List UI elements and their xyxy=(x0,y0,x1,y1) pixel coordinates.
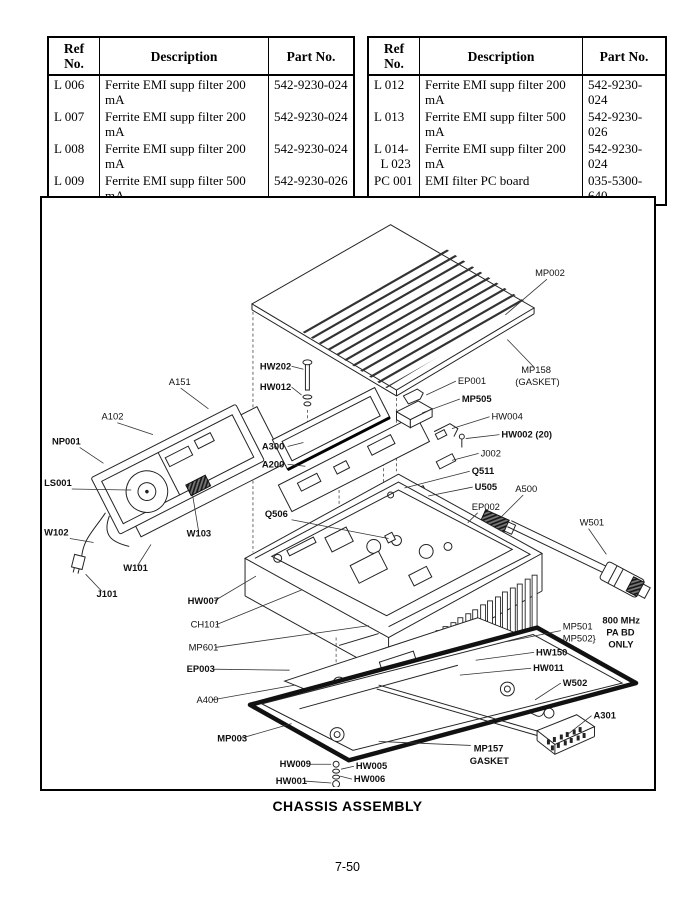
label-q511: Q511 xyxy=(472,465,494,476)
label-mp158-gasket: (GASKET) xyxy=(515,376,559,387)
label-800mhz-note: 800 MHz xyxy=(602,615,640,626)
label-hw001: HW001 xyxy=(276,775,307,786)
page-number: 7-50 xyxy=(0,860,695,874)
description: Ferrite EMI supp filter 200 mA xyxy=(100,108,269,140)
manual-page: Ref No. Description Part No. L 006 Ferri… xyxy=(0,0,695,899)
label-np001: NP001 xyxy=(52,435,81,446)
part-no: 542-9230-026 xyxy=(583,108,667,140)
label-w101: W101 xyxy=(123,562,148,573)
table-header-row: Ref No. Description Part No. xyxy=(368,37,666,75)
label-hw004: HW004 xyxy=(492,411,523,422)
part-top-cover-mp002 xyxy=(252,205,652,429)
ref-no: L 014- L 023 xyxy=(368,140,420,172)
parts-table-right: Ref No. Description Part No. L 012 Ferri… xyxy=(367,36,667,206)
part-no: 542-9230-024 xyxy=(583,75,667,108)
brace-glyph: } xyxy=(592,632,595,643)
label-hw007: HW007 xyxy=(188,595,219,606)
label-hw011: HW011 xyxy=(533,662,564,673)
col-ref: Ref No. xyxy=(368,37,420,75)
label-mp505: MP505 xyxy=(462,393,492,404)
label-mp157-gasket: GASKET xyxy=(470,755,509,766)
label-mp157: MP157 xyxy=(474,742,504,753)
diagram-title: CHASSIS ASSEMBLY xyxy=(0,798,695,814)
label-mp002: MP002 xyxy=(535,267,565,278)
label-ch101: CH101 xyxy=(191,619,220,630)
label-mp502: MP502 xyxy=(563,632,593,643)
ref-no: L 006 xyxy=(48,75,100,108)
table-row: L 014- L 023 Ferrite EMI supp filter 200… xyxy=(368,140,666,172)
part-j002 xyxy=(436,454,455,469)
label-q506: Q506 xyxy=(265,508,288,519)
part-no: 542-9230-024 xyxy=(269,75,355,108)
part-no: 542-9230-024 xyxy=(583,140,667,172)
chassis-assembly-diagram: MP002 MP158 (GASKET) HW202 HW012 EP001 M… xyxy=(42,198,652,787)
label-w501: W501 xyxy=(580,517,605,528)
label-a200: A200 xyxy=(262,458,284,469)
part-bottom-screws xyxy=(333,761,340,787)
label-hw009: HW009 xyxy=(280,758,311,769)
table-row: L 006 Ferrite EMI supp filter 200 mA 542… xyxy=(48,75,354,108)
ref-no: L 008 xyxy=(48,140,100,172)
part-screw-hw202 xyxy=(303,360,312,406)
label-only-note: ONLY xyxy=(608,638,634,649)
diagram-frame: MP002 MP158 (GASKET) HW202 HW012 EP001 M… xyxy=(40,196,656,791)
description: Ferrite EMI supp filter 200 mA xyxy=(420,140,583,172)
col-part: Part No. xyxy=(583,37,667,75)
label-hw006: HW006 xyxy=(354,773,385,784)
part-hw004 xyxy=(434,424,458,440)
label-hw202: HW202 xyxy=(260,360,291,371)
label-w502: W502 xyxy=(563,677,588,688)
label-j002: J002 xyxy=(481,447,501,458)
table-row: L 008 Ferrite EMI supp filter 200 mA 542… xyxy=(48,140,354,172)
label-j101: J101 xyxy=(97,588,118,599)
label-a301: A301 xyxy=(593,710,615,721)
label-u505: U505 xyxy=(475,481,497,492)
label-ep002: EP002 xyxy=(472,501,500,512)
col-part: Part No. xyxy=(269,37,355,75)
label-ep001: EP001 xyxy=(458,375,486,386)
table-header-row: Ref No. Description Part No. xyxy=(48,37,354,75)
part-plug-j101 xyxy=(70,554,85,574)
label-a102: A102 xyxy=(102,411,124,422)
part-no: 542-9230-024 xyxy=(269,108,355,140)
part-no: 542-9230-024 xyxy=(269,140,355,172)
label-a151: A151 xyxy=(169,376,191,387)
col-ref: Ref No. xyxy=(48,37,100,75)
ref-no: L 013 xyxy=(368,108,420,140)
label-mp003: MP003 xyxy=(217,732,247,743)
label-pa-bd-note: PA BD xyxy=(606,627,634,638)
col-desc: Description xyxy=(100,37,269,75)
label-mp601: MP601 xyxy=(189,641,219,652)
description: Ferrite EMI supp filter 200 mA xyxy=(100,75,269,108)
label-mp501: MP501 xyxy=(563,621,593,632)
label-hw012: HW012 xyxy=(260,381,291,392)
description: Ferrite EMI supp filter 200 mA xyxy=(420,75,583,108)
table-row: L 012 Ferrite EMI supp filter 200 mA 542… xyxy=(368,75,666,108)
table-row: L 013 Ferrite EMI supp filter 500 mA 542… xyxy=(368,108,666,140)
label-a400: A400 xyxy=(197,694,219,705)
label-w103: W103 xyxy=(187,528,212,539)
description: Ferrite EMI supp filter 200 mA xyxy=(100,140,269,172)
table-row: L 007 Ferrite EMI supp filter 200 mA 542… xyxy=(48,108,354,140)
part-hw002 xyxy=(459,434,464,447)
part-front-panel-a151 xyxy=(70,396,285,574)
ref-no: L 007 xyxy=(48,108,100,140)
label-hw150: HW150 xyxy=(536,646,567,657)
label-hw005: HW005 xyxy=(356,760,387,771)
col-desc: Description xyxy=(420,37,583,75)
label-ls001: LS001 xyxy=(44,477,72,488)
label-a500: A500 xyxy=(515,483,537,494)
label-a300: A300 xyxy=(262,440,284,451)
ref-no: L 012 xyxy=(368,75,420,108)
description: Ferrite EMI supp filter 500 mA xyxy=(420,108,583,140)
label-w102: W102 xyxy=(44,527,69,538)
label-mp158: MP158 xyxy=(521,364,551,375)
label-ep003: EP003 xyxy=(187,663,215,674)
label-hw002: HW002 (20) xyxy=(501,429,552,440)
